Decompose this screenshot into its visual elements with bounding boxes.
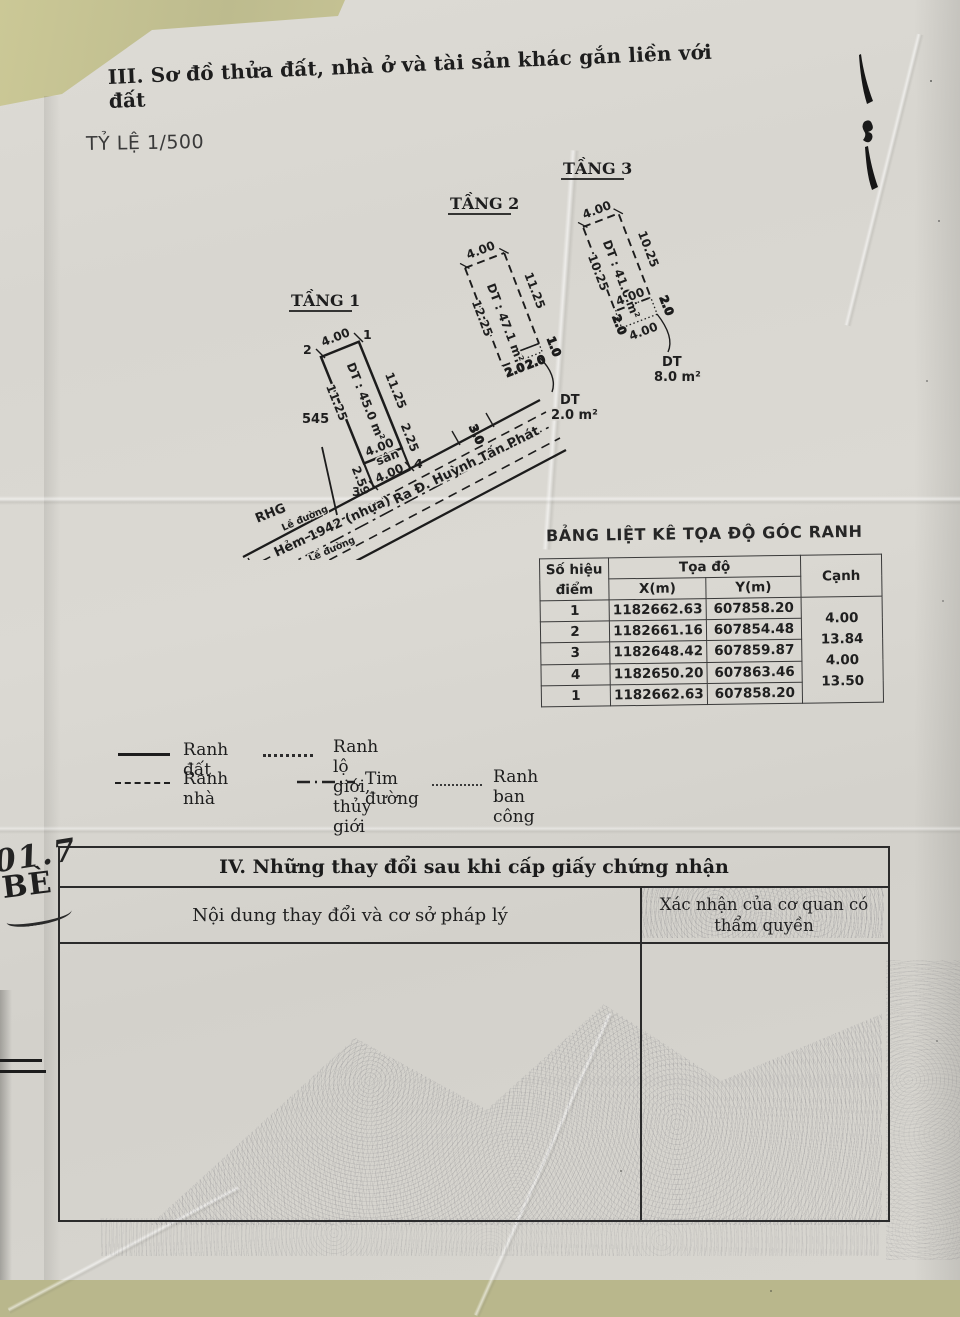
floor2-dim-right: 11.25 xyxy=(521,270,548,310)
floor2-balcony-area: 2.0 m² xyxy=(551,408,598,423)
coordinate-table: Số hiệu điểm Tọa độ Cạnh X(m) Y(m) 1 118… xyxy=(539,554,884,708)
floor3-dim-bal-bottom: 4.00 xyxy=(627,319,660,343)
legend-swatch-dashdot xyxy=(297,779,355,785)
legend-swatch-solid xyxy=(118,753,170,756)
point-no: 1 xyxy=(541,685,610,707)
legend-swatch-fine-dotted xyxy=(432,784,482,786)
floor1-plan: TẦNG 1 1 2 3 4 4.00 11.25 11.25 DT : 45.… xyxy=(289,288,423,515)
floor3-balcony-leader xyxy=(657,314,670,352)
section4-col-content: Nội dung thay đổi và cơ sở pháp lý xyxy=(60,888,640,942)
y-value: 607858.20 xyxy=(706,597,801,620)
col-header-y: Y(m) xyxy=(706,576,801,598)
margin-mark-line xyxy=(0,1059,42,1062)
floor3-plan: TẦNG 3 4.00 DT : 41.0 m² 10.25 10.25 4.0… xyxy=(561,156,701,385)
margin-mark-line xyxy=(0,1070,46,1073)
floor3-dim-bal-left: 2.0 xyxy=(609,313,629,337)
y-value: 607863.46 xyxy=(707,661,802,684)
legend-label: Tim đường xyxy=(365,769,419,809)
corner-point-2: 2 xyxy=(303,342,312,357)
x-value: 1182662.63 xyxy=(609,599,706,622)
point-no: 1 xyxy=(540,600,609,622)
x-value: 1182661.16 xyxy=(609,620,706,643)
legend-swatch-dashed xyxy=(115,782,170,784)
edge-value: 13.84 xyxy=(804,629,880,650)
table-row: 1 1182662.63 607858.20 4.00 13.84 4.00 1… xyxy=(540,596,882,622)
ink-marks xyxy=(830,30,930,210)
col-header-coord: Tọa độ xyxy=(608,555,800,579)
col-header-point: Số hiệu điểm xyxy=(539,558,609,601)
watermark-texture xyxy=(642,886,884,938)
neighbor-plot-number: 545 xyxy=(302,412,329,427)
y-value: 607858.20 xyxy=(707,682,802,705)
road-width-label: 6.00 xyxy=(249,559,274,560)
scanned-land-certificate-page: { "page": { "section3_title": "III. Sơ đ… xyxy=(0,0,960,1280)
point-no: 3 xyxy=(541,642,610,664)
handwritten-margin-note: BÈ xyxy=(0,865,54,906)
floor1-dim-right: 11.25 xyxy=(382,370,409,410)
floor1-title: TẦNG 1 xyxy=(291,288,360,310)
floor3-balcony-area: 8.0 m² xyxy=(654,370,701,385)
x-value: 1182650.20 xyxy=(610,662,707,685)
section4-title: IV. Những thay đổi sau khi cấp giấy chứn… xyxy=(60,848,888,886)
edge-value: 4.00 xyxy=(804,608,880,629)
legend-swatch-dotted xyxy=(263,754,313,757)
floor2-title: TẦNG 2 xyxy=(450,191,519,213)
x-value: 1182662.63 xyxy=(610,683,707,706)
edge-value: 13.50 xyxy=(805,671,881,692)
floor3-balcony-dt: DT xyxy=(662,355,682,370)
edge-value: 4.00 xyxy=(804,650,880,671)
floor2-dim-depth: 1.0 xyxy=(544,334,564,358)
floor2-dim-b1: 2.0 xyxy=(503,360,527,380)
parcel-diagram: TẦNG 1 1 2 3 4 4.00 11.25 11.25 DT : 45.… xyxy=(0,140,960,560)
point-no: 4 xyxy=(541,663,610,685)
road-frontage-label: 3.0 xyxy=(466,422,487,446)
watermark-texture xyxy=(886,960,960,1260)
x-value: 1182648.42 xyxy=(610,641,707,664)
paper-left-dark-edge xyxy=(0,990,12,1280)
watermark-texture xyxy=(100,1218,880,1256)
edge-values-cell: 4.00 13.84 4.00 13.50 xyxy=(801,596,883,703)
floor2-balcony-dt: DT xyxy=(560,393,580,408)
scan-noise-specks xyxy=(930,80,932,82)
floor3-dim-bal-right: 2.0 xyxy=(656,293,676,317)
point-no: 2 xyxy=(540,621,609,643)
floor3-dim-right: 10.25 xyxy=(635,229,662,269)
paper-crease xyxy=(0,826,960,834)
floor2-plan: TẦNG 2 4.00 DT : 47.1 m² 12.25 11.25 2.0… xyxy=(448,191,598,423)
legend-label: Ranh ban công xyxy=(493,767,538,827)
divider xyxy=(60,942,888,944)
floor3-title: TẦNG 3 xyxy=(563,156,632,178)
col-header-edge: Cạnh xyxy=(800,554,882,597)
y-value: 607854.48 xyxy=(706,618,801,641)
col-header-x: X(m) xyxy=(609,578,706,600)
corner-point-1: 1 xyxy=(363,327,372,342)
y-value: 607859.87 xyxy=(707,640,802,663)
legend-label: Ranh nhà xyxy=(183,769,228,809)
